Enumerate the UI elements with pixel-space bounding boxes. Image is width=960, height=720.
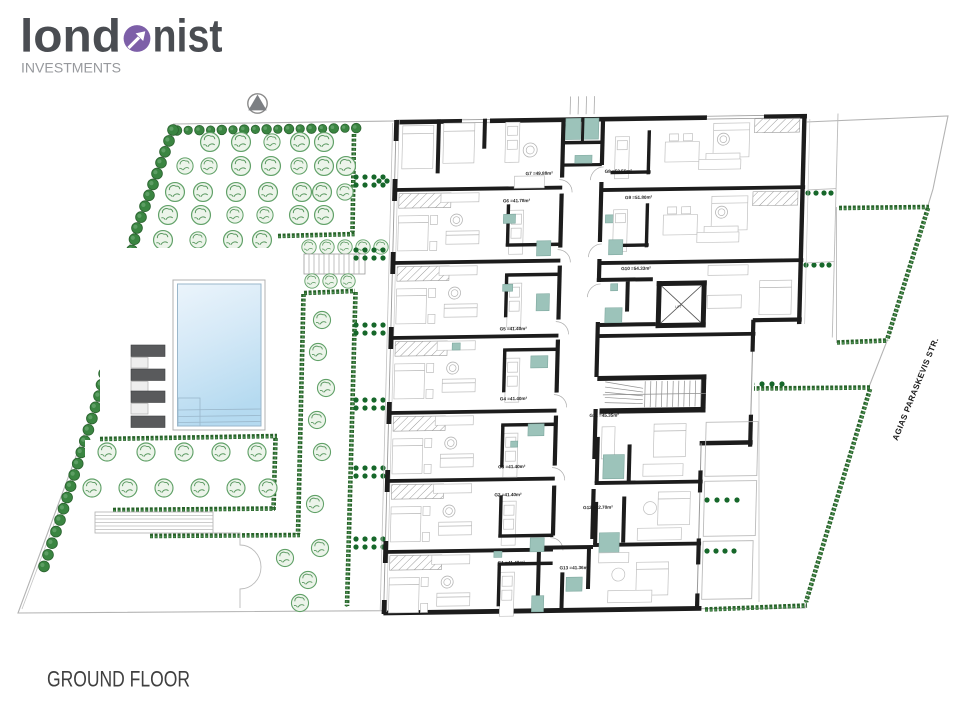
svg-text:G1 =41.40m²: G1 =41.40m² <box>498 560 526 565</box>
svg-text:INVESTMENTS: INVESTMENTS <box>21 60 121 76</box>
svg-text:G11 =45.35m²: G11 =45.35m² <box>589 413 619 418</box>
svg-text:nist: nist <box>153 10 223 62</box>
svg-text:G13 =41.36m²: G13 =41.36m² <box>559 565 589 570</box>
svg-text:lond: lond <box>20 10 121 62</box>
svg-text:G3 =41.40m²: G3 =41.40m² <box>498 464 526 469</box>
svg-text:G6 =41.78m²: G6 =41.78m² <box>503 198 531 203</box>
svg-text:G4 =41.40m²: G4 =41.40m² <box>500 396 528 401</box>
svg-text:G8 =52.56m²: G8 =52.56m² <box>605 169 633 174</box>
svg-text:G5 =41.40m²: G5 =41.40m² <box>500 326 528 331</box>
svg-text:G2 =41.40m²: G2 =41.40m² <box>494 492 522 497</box>
svg-text:G7 =49.88m²: G7 =49.88m² <box>526 171 554 176</box>
svg-text:G10 =54.33m²: G10 =54.33m² <box>621 266 651 271</box>
svg-text:LIFT: LIFT <box>675 305 682 309</box>
svg-text:GROUND FLOOR: GROUND FLOOR <box>47 667 190 692</box>
svg-text:G9 =51.80m²: G9 =51.80m² <box>625 195 653 200</box>
svg-text:G12 =42.70m²: G12 =42.70m² <box>583 505 613 510</box>
